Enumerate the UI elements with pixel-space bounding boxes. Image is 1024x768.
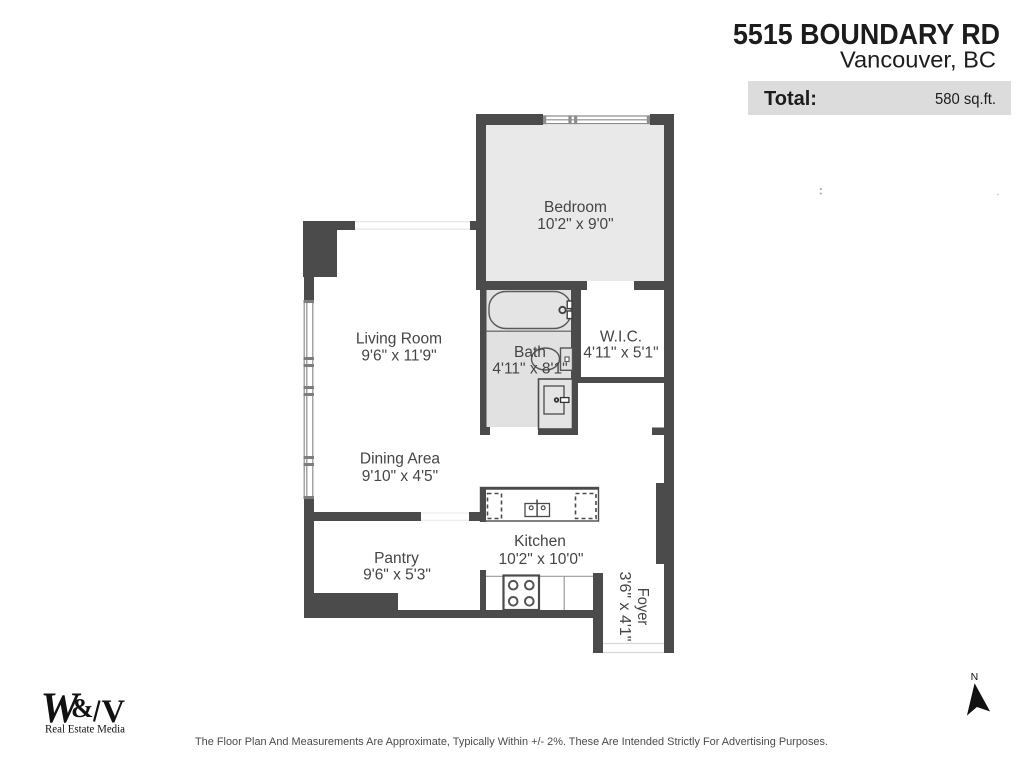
svg-text:10'2" x 9'0": 10'2" x 9'0" (537, 216, 613, 233)
svg-text:Bath: Bath (514, 344, 546, 361)
svg-text:Real Estate Media: Real Estate Media (45, 721, 126, 735)
svg-text:N: N (971, 671, 979, 683)
svg-text:Vancouver, BC: Vancouver, BC (840, 47, 996, 73)
svg-text:Living Room: Living Room (356, 331, 442, 348)
svg-text:580 sq.ft.: 580 sq.ft. (935, 91, 996, 108)
svg-text:4'11" x 8'1": 4'11" x 8'1" (492, 361, 567, 378)
svg-text:The Floor Plan And Measurement: The Floor Plan And Measurements Are Appr… (195, 736, 828, 748)
svg-text:W.I.C.: W.I.C. (600, 329, 642, 346)
svg-text:Foyer: Foyer (634, 588, 651, 626)
svg-text:9'6" x 11'9": 9'6" x 11'9" (361, 348, 436, 365)
svg-text:4'11" x 5'1": 4'11" x 5'1" (583, 345, 658, 362)
svg-text:Total:: Total: (764, 88, 817, 110)
svg-text:9'6" x 5'3": 9'6" x 5'3" (363, 567, 431, 584)
svg-text:Kitchen: Kitchen (514, 533, 566, 550)
svg-text:Bedroom: Bedroom (544, 199, 607, 216)
svg-text:&: & (71, 693, 94, 723)
svg-text:3'6" x 4'1": 3'6" x 4'1" (616, 572, 633, 642)
svg-text:9'10" x 4'5": 9'10" x 4'5" (362, 468, 438, 485)
svg-text:Pantry: Pantry (374, 550, 419, 567)
svg-text:Dining Area: Dining Area (360, 451, 441, 468)
svg-text:10'2" x 10'0": 10'2" x 10'0" (498, 551, 583, 568)
